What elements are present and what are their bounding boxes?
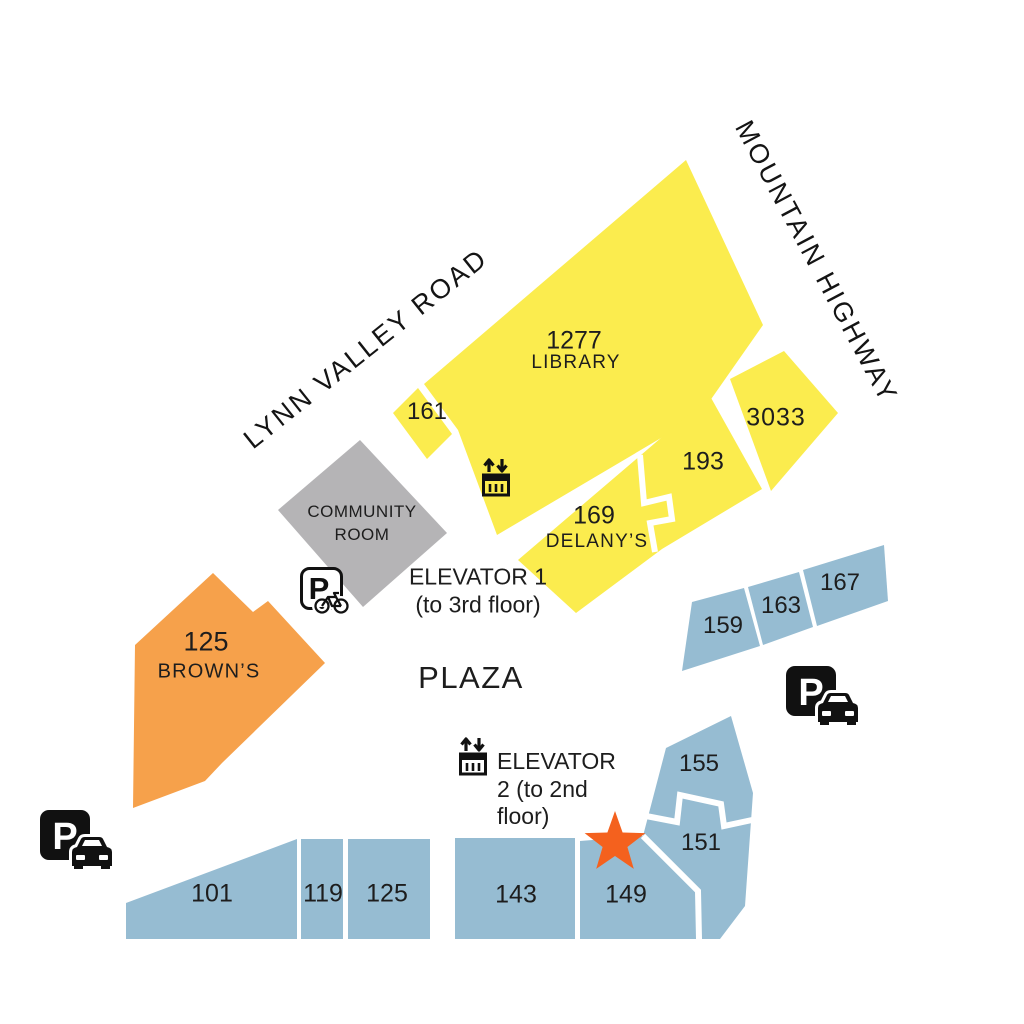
building-community-room-name: COMMUNITY ROOM <box>300 501 424 547</box>
building-169-number: 169 <box>573 502 615 531</box>
building-155-number: 155 <box>679 750 719 778</box>
building-browns-number: 125 <box>183 626 228 657</box>
building-101-number: 101 <box>191 880 233 909</box>
elevator-2-icon <box>461 738 486 774</box>
building-library-number: 1277 <box>546 327 602 356</box>
building-161-number: 161 <box>407 398 447 426</box>
mall-site-map: P P <box>0 0 1024 1024</box>
building-159-number: 159 <box>703 612 743 640</box>
building-149-number: 149 <box>605 881 647 910</box>
building-3033-number: 3033 <box>746 404 806 433</box>
building-119-number: 119 <box>303 880 343 909</box>
building-163-number: 163 <box>761 592 801 620</box>
map-shapes-canvas: P P <box>0 0 1024 1024</box>
car-parking-icon-left: P <box>40 810 112 869</box>
building-browns-name: BROWN’S <box>158 661 261 684</box>
building-193-number: 193 <box>682 448 724 477</box>
building-143-number: 143 <box>495 881 537 910</box>
bike-parking-icon: P <box>302 569 348 613</box>
plaza-label: PLAZA <box>418 660 524 696</box>
car-parking-icon-right: P <box>786 666 858 725</box>
elevator-1-label: ELEVATOR 1 (to 3rd floor) <box>403 563 553 618</box>
building-125-number: 125 <box>366 880 408 909</box>
building-167-number: 167 <box>820 569 860 597</box>
building-browns-shape <box>133 573 325 808</box>
building-library-name: LIBRARY <box>531 352 620 374</box>
building-169-name: DELANY’S <box>546 531 649 553</box>
building-151-number: 151 <box>681 829 721 857</box>
elevator-2-label: ELEVATOR 2 (to 2nd floor) <box>497 748 619 831</box>
